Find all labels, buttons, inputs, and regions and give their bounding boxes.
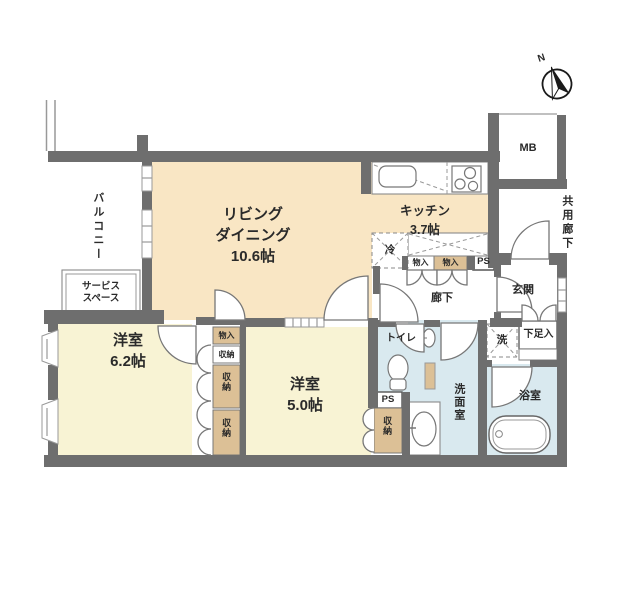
burner-1	[465, 168, 476, 179]
entrance-door	[511, 221, 549, 259]
entrance-side-window	[558, 278, 566, 312]
storage-bedroom1-label: 物入	[213, 331, 240, 342]
common-corridor-label: 共用廊下	[559, 195, 574, 251]
bedroom1-bay-window-1	[42, 330, 58, 367]
bathroom-label: 浴室	[510, 389, 550, 404]
burner-3	[468, 181, 477, 190]
vanity	[406, 402, 440, 455]
floor-plan-drawing	[0, 0, 617, 611]
pipe-space-label-2: PS	[375, 394, 401, 407]
entrance-label: 玄関	[500, 283, 546, 298]
wash-basin	[412, 412, 436, 446]
bathtub	[489, 416, 550, 453]
washer-label: 洗	[492, 333, 512, 347]
balcony-window-2	[142, 210, 152, 258]
bedroom1-bay-window-2	[42, 399, 58, 444]
bedroom1-closet-bifold-4	[198, 429, 211, 455]
pipe-space-label-1: PS	[473, 256, 494, 269]
shoe-cabinet-label: 下足入	[520, 328, 557, 342]
hallway-label: 廊下	[420, 291, 464, 306]
floor-plan: リビング ダイニング 10.6帖 キッチン 3.7帖 洋室 6.2帖 洋室 5.…	[0, 0, 617, 611]
closet-bedroom2-label: 収納	[381, 416, 393, 436]
storage-kitchen-label-b: 物入	[434, 258, 467, 269]
kitchen-sink	[379, 166, 416, 187]
toilet-fixture	[388, 355, 408, 390]
bedroom1-closet-bifold-1	[197, 345, 211, 373]
bedroom2-label: 洋室 5.0帖	[235, 374, 375, 416]
closet-bedroom1-label-c: 収納	[220, 418, 232, 438]
bedroom2-transom-window	[285, 318, 324, 327]
closet-bedroom1-label-b: 収納	[220, 372, 232, 392]
balcony-label: バルコニー	[90, 192, 105, 262]
toilet-label: トイレ	[378, 332, 424, 346]
kitchen-label: キッチン 3.7帖	[365, 202, 485, 240]
north-compass	[538, 62, 576, 102]
toilet-sink	[423, 329, 435, 347]
living-dining-label: リビング ダイニング 10.6帖	[163, 204, 343, 267]
bedroom1-closet-bifold-3	[197, 401, 211, 429]
storage-kitchen-label-a: 物入	[407, 258, 434, 269]
washroom-label: 洗面室	[451, 383, 466, 422]
bedroom1-closet-bifold-2	[197, 373, 211, 401]
meter-box-label: MB	[505, 141, 551, 156]
small-cabinet	[425, 363, 435, 389]
bedroom1-label: 洋室 6.2帖	[58, 330, 198, 372]
refrigerator-label: 冷	[380, 243, 400, 257]
closet-bedroom1-label-a: 収納	[213, 350, 240, 361]
burner-2	[455, 179, 465, 189]
service-space-label: サービス スペース	[62, 281, 140, 305]
